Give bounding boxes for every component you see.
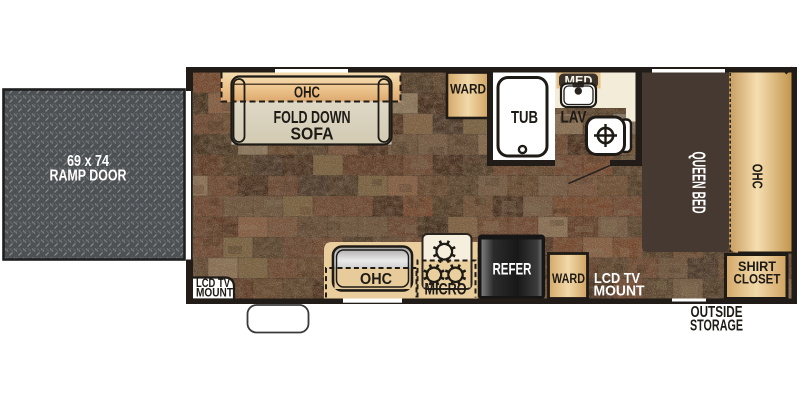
svg-text:RAMP DOOR: RAMP DOOR — [50, 168, 127, 185]
svg-text:CLOSET: CLOSET — [734, 272, 782, 287]
svg-text:OHC: OHC — [294, 84, 320, 101]
svg-text:MOUNT: MOUNT — [196, 288, 233, 300]
svg-text:MICRO: MICRO — [425, 281, 467, 299]
svg-text:LAV: LAV — [561, 109, 587, 127]
svg-text:MOUNT: MOUNT — [594, 283, 645, 300]
svg-text:SOFA: SOFA — [291, 124, 334, 144]
svg-text:REFER: REFER — [493, 260, 532, 279]
svg-text:WARD: WARD — [450, 82, 486, 97]
svg-text:TUB: TUB — [511, 107, 538, 127]
svg-text:OHC: OHC — [749, 164, 765, 189]
svg-text:WARD: WARD — [552, 271, 585, 286]
svg-text:OHC: OHC — [360, 271, 392, 288]
svg-text:QUEEN BED: QUEEN BED — [689, 152, 709, 214]
svg-text:STORAGE: STORAGE — [690, 318, 743, 335]
